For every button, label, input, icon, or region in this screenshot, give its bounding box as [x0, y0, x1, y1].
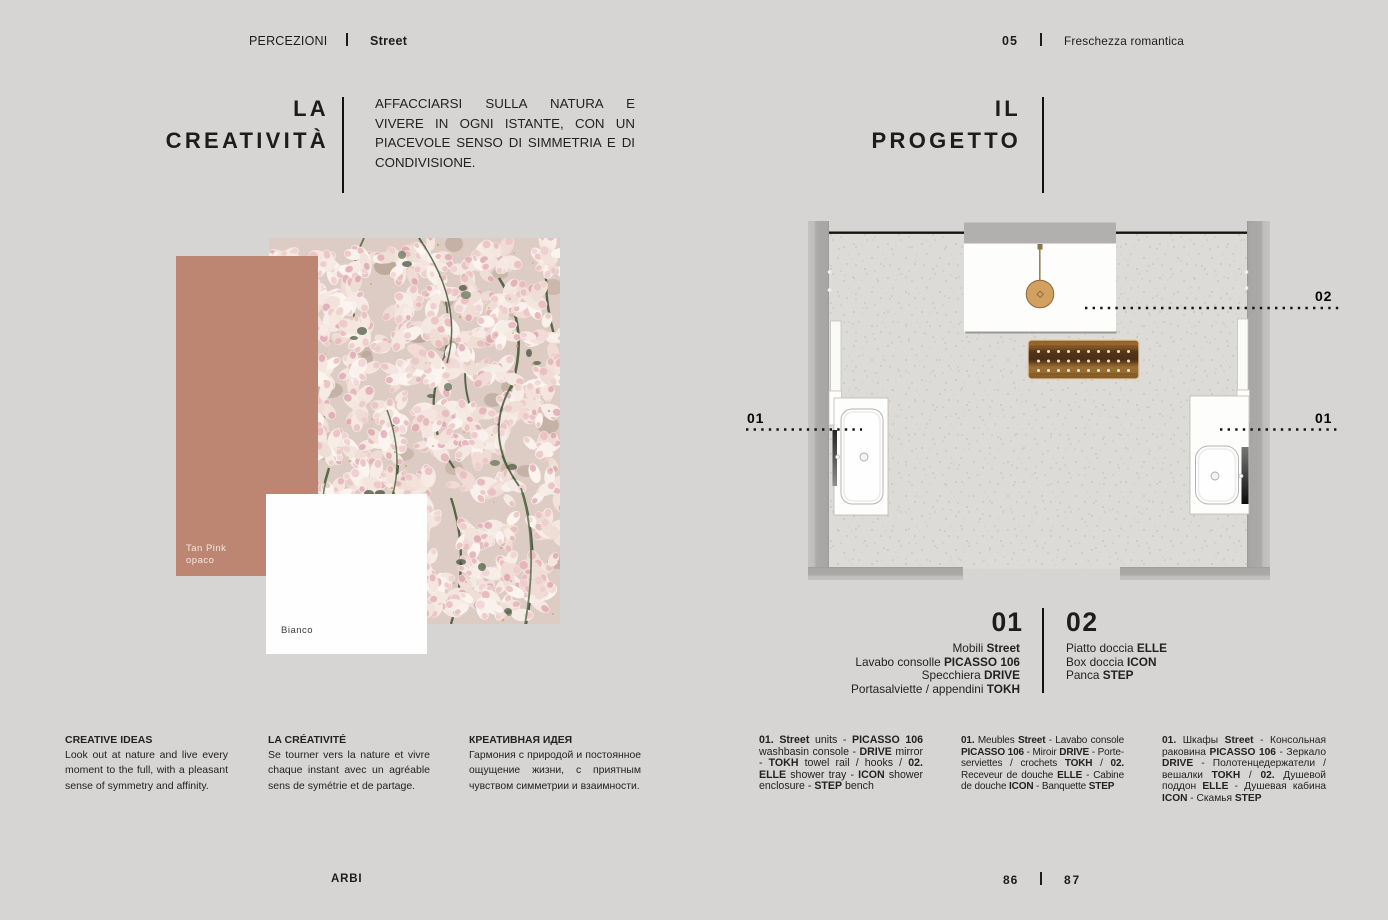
svg-text:01: 01: [1315, 410, 1332, 426]
svg-text:02: 02: [1315, 288, 1332, 304]
svg-text:01: 01: [747, 410, 764, 426]
